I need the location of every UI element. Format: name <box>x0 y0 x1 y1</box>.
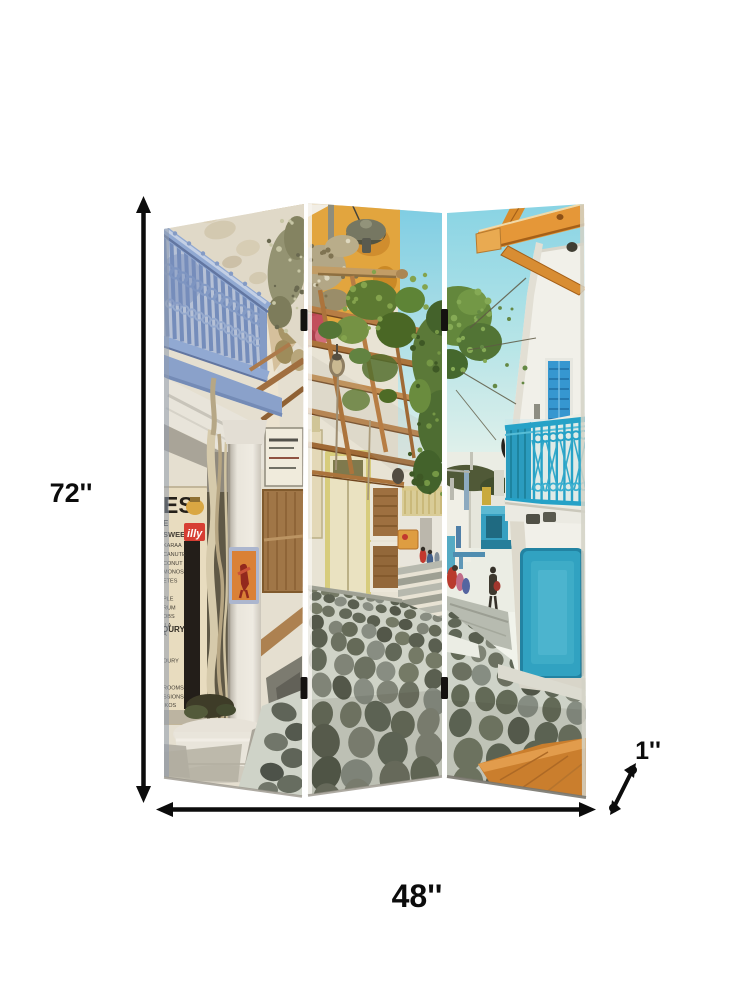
svg-text:48'': 48'' <box>392 878 443 914</box>
svg-text:72'': 72'' <box>50 478 93 508</box>
svg-text:1'': 1'' <box>635 737 661 765</box>
